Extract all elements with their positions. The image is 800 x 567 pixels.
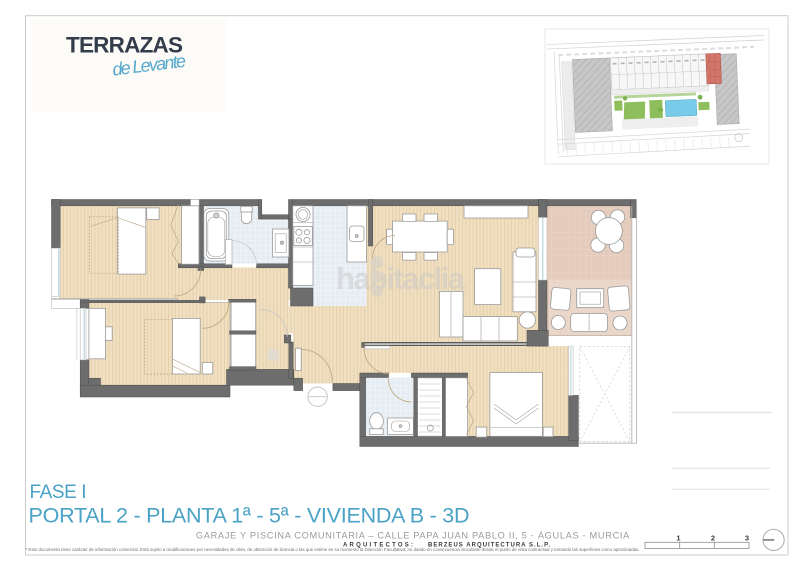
svg-text:2: 2 — [711, 534, 715, 543]
svg-text:GARAJE Y PISCINA COMUNITARIA –: GARAJE Y PISCINA COMUNITARIA – CALLE PAP… — [196, 531, 630, 541]
svg-text:PORTAL 2 - PLANTA 1ª - 5ª - VI: PORTAL 2 - PLANTA 1ª - 5ª - VIVIENDA B -… — [29, 504, 470, 528]
svg-text:habitaclia: habitaclia — [336, 261, 466, 296]
svg-text:1: 1 — [676, 534, 680, 543]
svg-text:FASE I: FASE I — [30, 482, 87, 503]
svg-text:3: 3 — [745, 534, 749, 543]
svg-text:* Este documento tiene carácte: * Este documento tiene carácter de infor… — [26, 547, 640, 552]
